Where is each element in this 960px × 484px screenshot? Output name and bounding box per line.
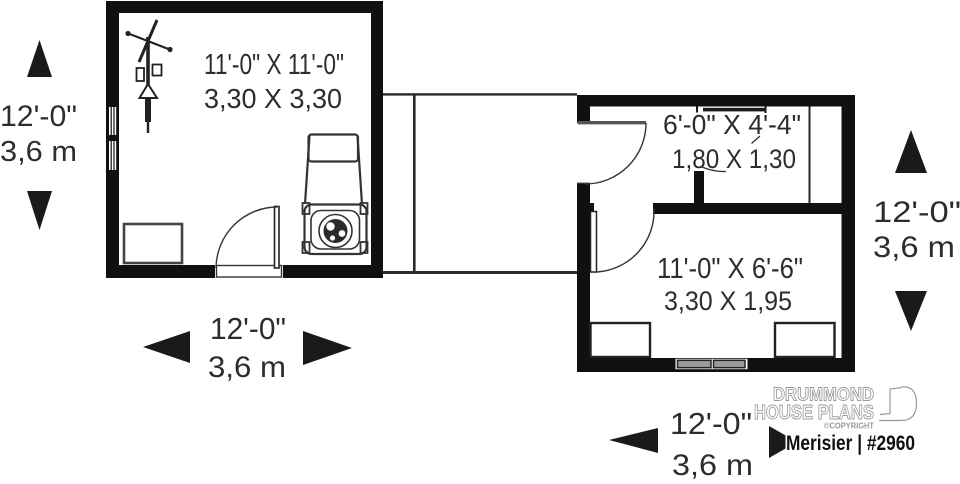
svg-text:1,80 X 1,30: 1,80 X 1,30 bbox=[672, 144, 796, 174]
svg-text:12'-0": 12'-0" bbox=[210, 311, 286, 346]
svg-text:3,6 m: 3,6 m bbox=[0, 136, 77, 168]
svg-text:12'-0": 12'-0" bbox=[670, 406, 752, 441]
svg-text:12'-0": 12'-0" bbox=[873, 196, 960, 229]
svg-text:©COPYRIGHT: ©COPYRIGHT bbox=[824, 421, 875, 431]
svg-text:Merisier | #2960: Merisier | #2960 bbox=[786, 432, 915, 455]
svg-text:3,30 X 3,30: 3,30 X 3,30 bbox=[204, 83, 342, 114]
svg-text:11'-0" X 11'-0": 11'-0" X 11'-0" bbox=[204, 49, 344, 81]
svg-text:3,6 m: 3,6 m bbox=[208, 351, 286, 384]
svg-text:11'-0" X 6'-6": 11'-0" X 6'-6" bbox=[657, 253, 803, 285]
svg-text:3,6 m: 3,6 m bbox=[873, 231, 955, 264]
svg-text:3,30 X 1,95: 3,30 X 1,95 bbox=[664, 286, 792, 316]
svg-text:3,6 m: 3,6 m bbox=[672, 449, 753, 482]
svg-text:12'-0": 12'-0" bbox=[0, 100, 77, 133]
svg-text:6'-0" X 4'-4": 6'-0" X 4'-4" bbox=[663, 109, 801, 140]
